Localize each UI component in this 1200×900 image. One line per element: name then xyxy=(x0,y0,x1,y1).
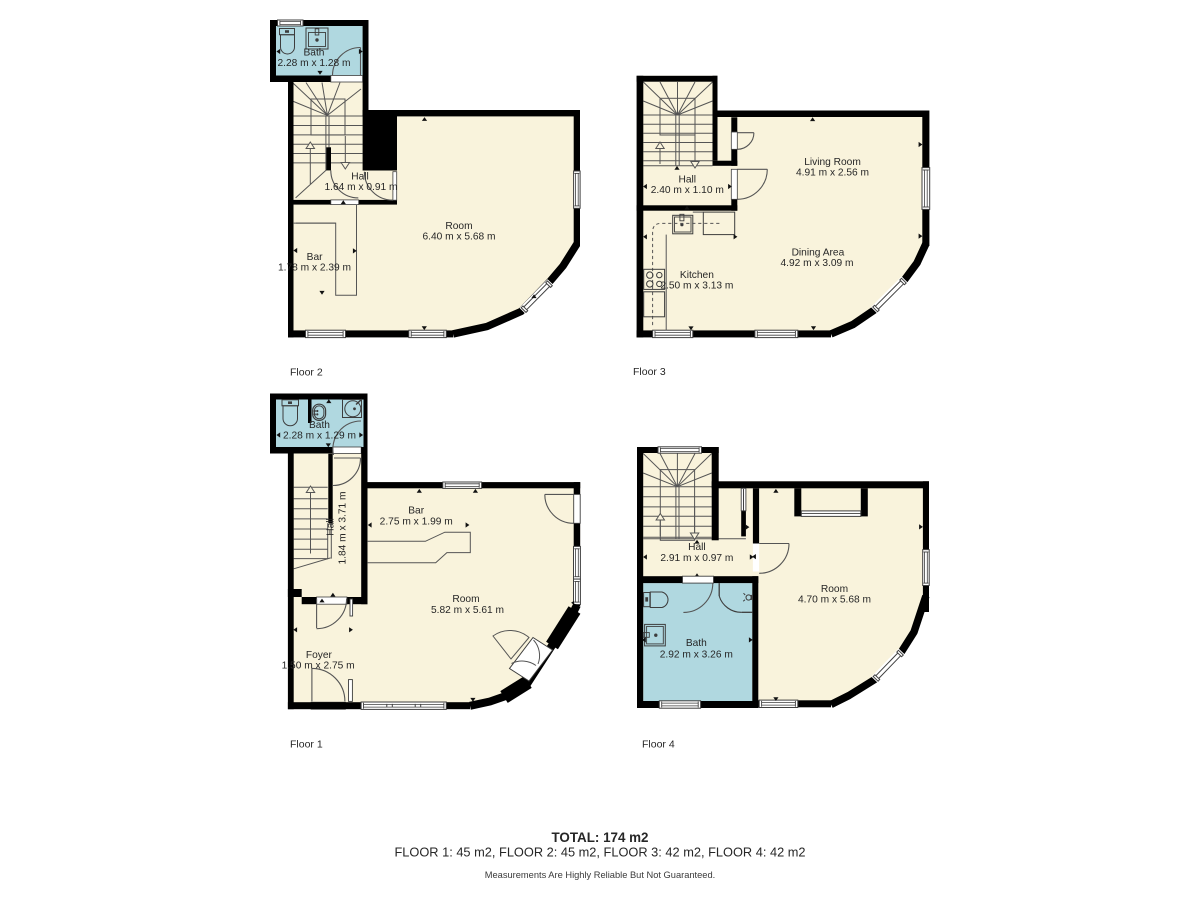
svg-text:Hall: Hall xyxy=(351,172,369,183)
svg-text:Room: Room xyxy=(452,594,479,605)
svg-text:Hall: Hall xyxy=(688,542,706,553)
svg-text:Measurements Are Highly Reliab: Measurements Are Highly Reliable But Not… xyxy=(485,870,715,880)
svg-text:Bath: Bath xyxy=(309,420,330,431)
svg-text:Floor 3: Floor 3 xyxy=(633,366,666,378)
svg-text:FLOOR 1: 45 m2, FLOOR 2: 45 m2: FLOOR 1: 45 m2, FLOOR 2: 45 m2, FLOOR 3:… xyxy=(394,845,805,860)
svg-text:Hall: Hall xyxy=(326,518,337,536)
svg-text:2.92 m x 3.26 m: 2.92 m x 3.26 m xyxy=(660,649,733,660)
svg-text:4.91 m x 2.56 m: 4.91 m x 2.56 m xyxy=(796,168,869,179)
svg-text:1.50 m x 2.75 m: 1.50 m x 2.75 m xyxy=(282,661,355,672)
svg-text:Bath: Bath xyxy=(686,638,707,649)
svg-text:1.64 m x 0.91 m: 1.64 m x 0.91 m xyxy=(324,182,397,193)
svg-text:TOTAL: 174 m2: TOTAL: 174 m2 xyxy=(552,830,649,845)
svg-text:Floor 2: Floor 2 xyxy=(290,367,323,379)
svg-text:2.28 m x 1.28 m: 2.28 m x 1.28 m xyxy=(277,58,350,69)
svg-text:Bar: Bar xyxy=(408,506,424,517)
svg-text:6.40 m x 5.68 m: 6.40 m x 5.68 m xyxy=(422,232,495,243)
svg-text:Room: Room xyxy=(445,221,472,232)
svg-text:Kitchen: Kitchen xyxy=(680,270,714,281)
svg-text:Floor 1: Floor 1 xyxy=(290,739,323,751)
svg-text:Bath: Bath xyxy=(304,48,325,59)
svg-text:5.82 m x 5.61 m: 5.82 m x 5.61 m xyxy=(431,605,504,616)
svg-text:2.40 m x 1.10 m: 2.40 m x 1.10 m xyxy=(651,185,724,196)
svg-text:1.78 m x 2.39 m: 1.78 m x 2.39 m xyxy=(278,263,351,274)
svg-text:Bar: Bar xyxy=(307,252,323,263)
svg-text:4.92 m x 3.09 m: 4.92 m x 3.09 m xyxy=(780,258,853,269)
svg-text:2.75 m x 1.99 m: 2.75 m x 1.99 m xyxy=(380,516,453,527)
svg-text:2.28 m x 1.29 m: 2.28 m x 1.29 m xyxy=(283,431,356,442)
svg-text:Floor 4: Floor 4 xyxy=(642,738,675,750)
svg-text:Dining Area: Dining Area xyxy=(792,248,845,259)
svg-text:Hall: Hall xyxy=(679,175,697,186)
svg-text:2.91 m x 0.97 m: 2.91 m x 0.97 m xyxy=(660,553,733,564)
svg-text:1.84 m x 3.71 m: 1.84 m x 3.71 m xyxy=(338,491,349,564)
svg-text:Living Room: Living Room xyxy=(804,157,861,168)
svg-text:Foyer: Foyer xyxy=(306,650,333,661)
svg-text:Room: Room xyxy=(821,584,848,595)
svg-text:2.50 m x 3.13 m: 2.50 m x 3.13 m xyxy=(660,280,733,291)
svg-text:4.70 m x 5.68 m: 4.70 m x 5.68 m xyxy=(798,595,871,606)
